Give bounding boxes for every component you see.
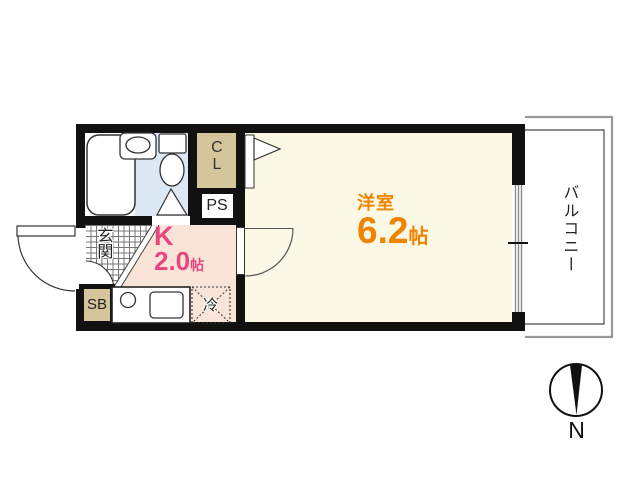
entrance-label: 玄関: [93, 227, 111, 259]
kitchen-size: 2.0: [154, 246, 190, 276]
western-room-size-unit: 帖: [408, 226, 428, 248]
north-compass: [550, 364, 602, 416]
closet-label: CL: [207, 139, 225, 173]
bathroom-door: [157, 189, 187, 215]
entrance-opening: [75, 228, 86, 289]
compass-north-label: N: [561, 417, 592, 443]
refrigerator-label: 冷: [203, 297, 218, 314]
toilet: [159, 134, 186, 186]
counter-sink: [150, 292, 183, 318]
floorplan-canvas: 玄関 K 2.0帖 CL PS SB 冷 洋室 6.2帖 バルコニー N: [0, 0, 640, 480]
kitchen-counter: [112, 287, 190, 323]
wall-top: [76, 124, 525, 133]
sink: [120, 133, 156, 159]
shoe-box-label: SB: [81, 296, 113, 313]
balcony-label: バルコニー: [559, 184, 577, 274]
entrance-door: [17, 226, 75, 291]
closet-door: [245, 135, 280, 188]
kitchen-name: K: [154, 224, 204, 248]
pipe-space-label: PS: [196, 197, 238, 215]
kitchen-size-unit: 帖: [190, 257, 204, 273]
kitchen-room-door: [237, 228, 294, 277]
western-room-size: 6.2: [357, 210, 408, 251]
kitchen-label: K 2.0帖: [154, 224, 204, 275]
entrance-step: [112, 225, 159, 290]
burner: [121, 293, 136, 308]
western-room-label: 洋室 6.2帖: [357, 193, 428, 249]
